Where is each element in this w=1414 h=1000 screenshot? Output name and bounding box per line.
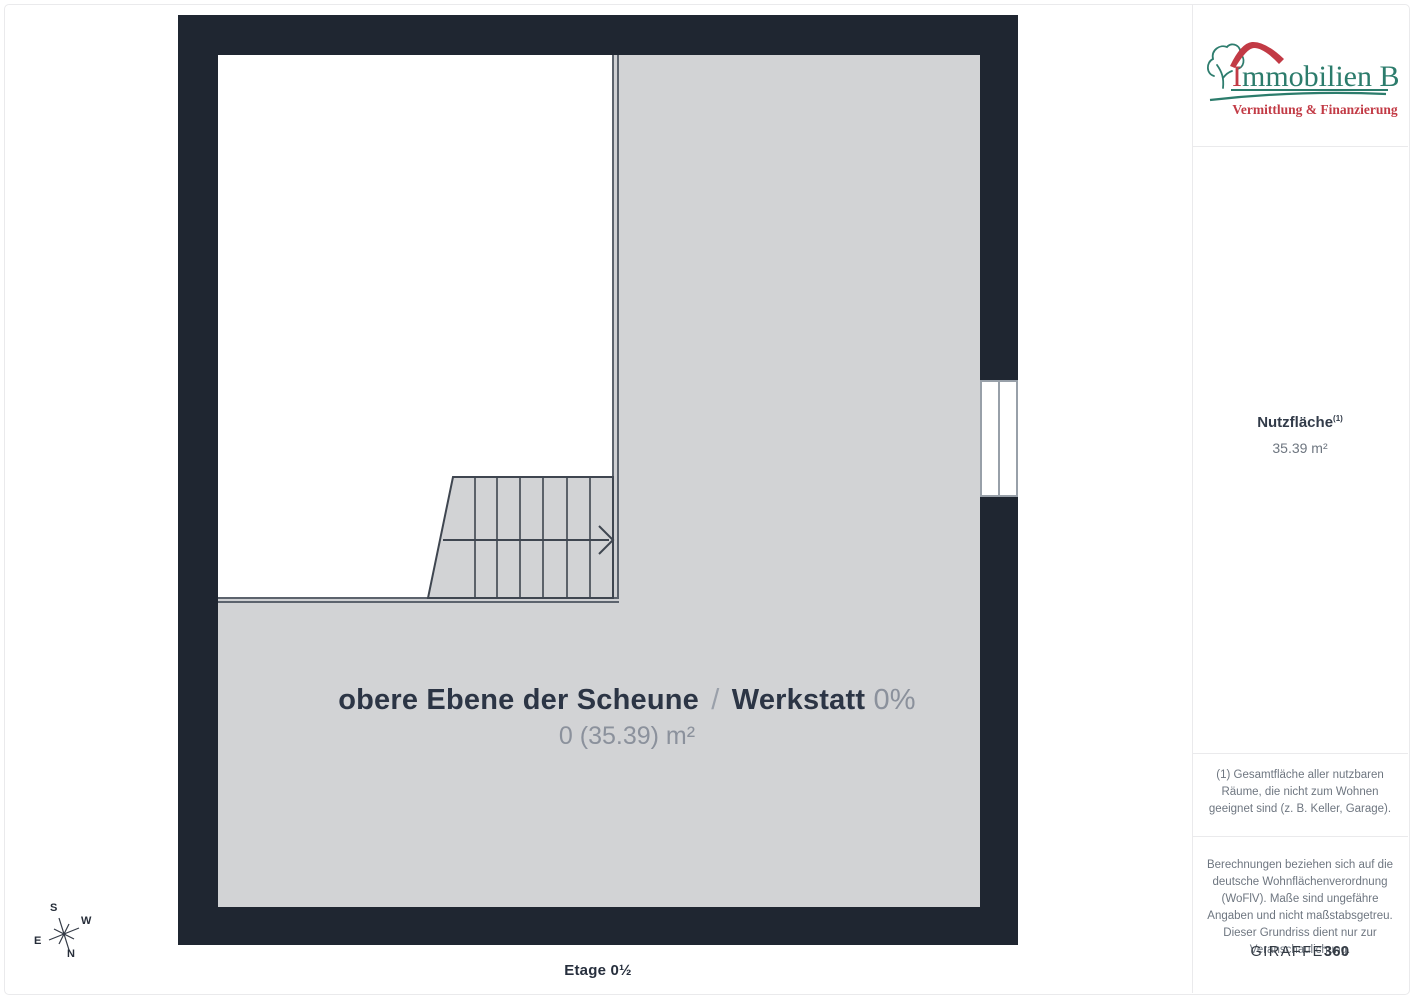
sidebar-section-divider bbox=[1193, 753, 1408, 754]
floorplan-interior bbox=[218, 55, 980, 907]
room-area-value: 0 (35.39) m² bbox=[240, 722, 1014, 751]
compass-rose: S W E N bbox=[28, 898, 102, 972]
floorplan-page: obere Ebene der Scheune / Werkstatt 0% 0… bbox=[0, 0, 1414, 1000]
footnote-ref: (1) bbox=[1333, 414, 1343, 423]
room-name-separator: / bbox=[707, 684, 723, 716]
logo-subtitle: Vermittlung & Finanzierung bbox=[1232, 102, 1397, 117]
window-mullion bbox=[998, 382, 1000, 495]
compass-north: N bbox=[67, 948, 75, 960]
logo-title-rest: mmobilien Bart bbox=[1242, 60, 1400, 93]
compass-west: W bbox=[81, 915, 91, 927]
sidebar-section-divider bbox=[1193, 146, 1408, 147]
window bbox=[980, 380, 1018, 497]
floorplan-walls bbox=[178, 15, 1018, 945]
brand-number: 360 bbox=[1324, 944, 1350, 960]
area-metric: Nutzfläche(1) 35.39 m² bbox=[1193, 414, 1407, 456]
sidebar-section-divider bbox=[1193, 836, 1408, 837]
room-percent: 0% bbox=[873, 684, 915, 716]
logo-title-initial: I bbox=[1232, 60, 1242, 93]
company-logo: Immobilien Bart Vermittlung & Finanzieru… bbox=[1204, 38, 1400, 134]
metric-label: Nutzfläche(1) bbox=[1193, 414, 1407, 431]
room-name-1: obere Ebene der Scheune bbox=[338, 684, 699, 716]
footnote-text: (1) Gesamtfläche aller nutzbaren Räume, … bbox=[1202, 767, 1398, 818]
svg-text:Immobilien Bart: Immobilien Bart bbox=[1232, 60, 1400, 93]
floor-level-label: Etage 0½ bbox=[178, 962, 1018, 979]
brand-name: GIRAFFE bbox=[1250, 944, 1323, 960]
giraffe360-brand: GIRAFFE360 bbox=[1193, 944, 1407, 960]
metric-value: 35.39 m² bbox=[1193, 440, 1407, 456]
compass-east: E bbox=[34, 935, 41, 947]
sidebar-divider bbox=[1192, 5, 1193, 993]
compass-south: S bbox=[50, 902, 57, 914]
room-title: obere Ebene der Scheune / Werkstatt 0% bbox=[240, 684, 1014, 717]
staircase bbox=[423, 475, 618, 603]
room-name-2: Werkstatt bbox=[732, 684, 865, 716]
